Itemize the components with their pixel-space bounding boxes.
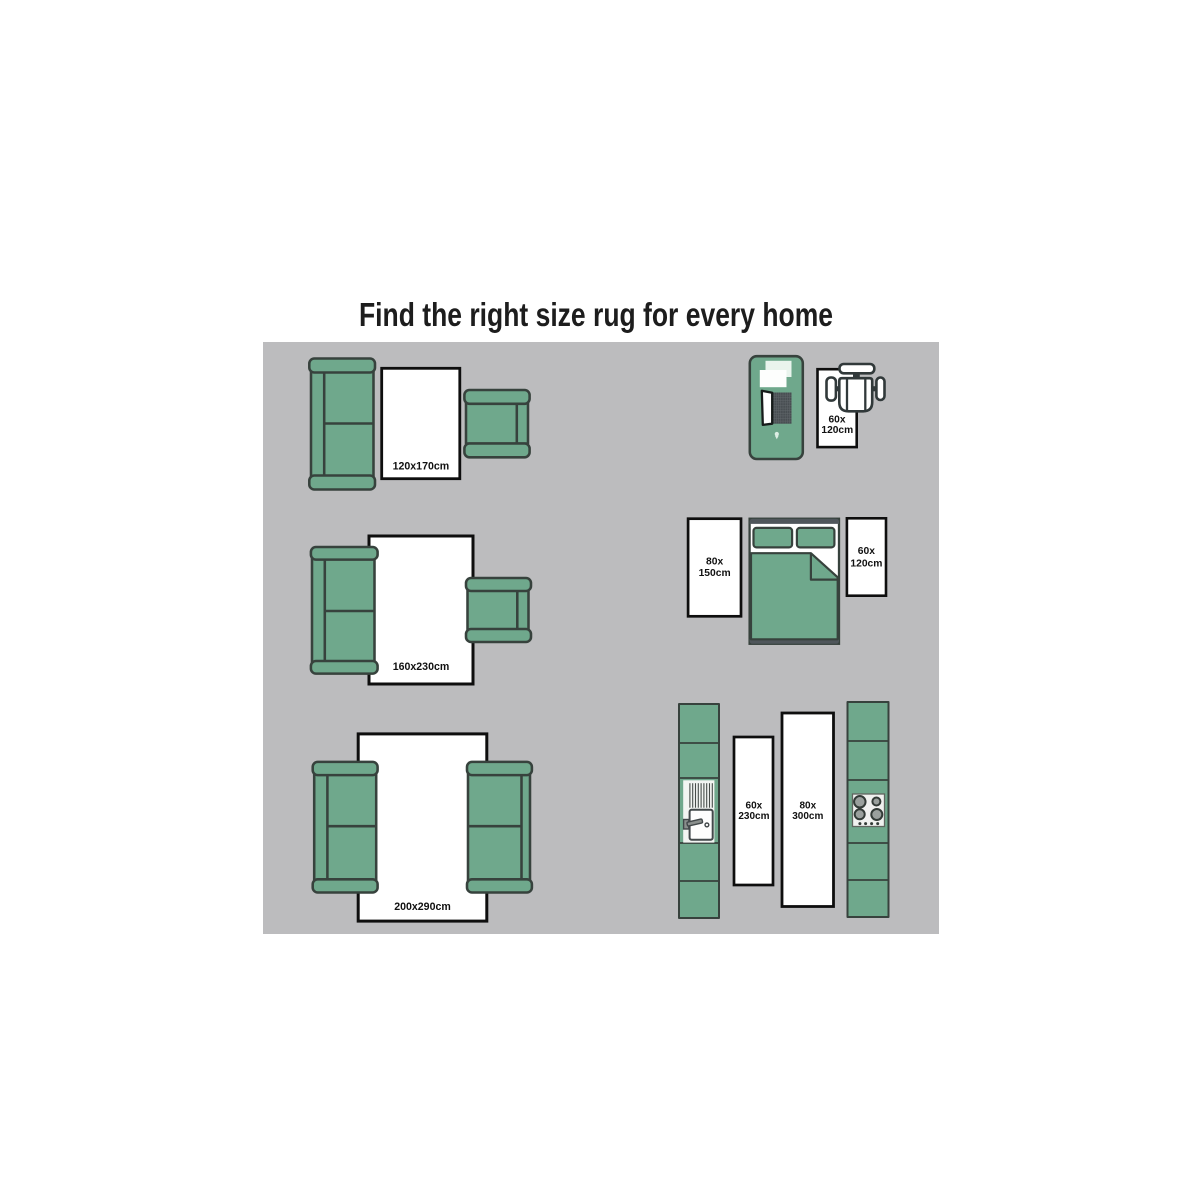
svg-text:60x: 60x — [746, 800, 763, 811]
svg-text:160x230cm: 160x230cm — [393, 661, 450, 673]
svg-text:80x: 80x — [706, 556, 723, 567]
svg-text:Find the right size rug for ev: Find the right size rug for every home — [359, 296, 833, 333]
svg-text:60x: 60x — [829, 415, 846, 426]
svg-text:120cm: 120cm — [850, 558, 882, 569]
svg-text:120cm: 120cm — [821, 425, 853, 436]
svg-text:120x170cm: 120x170cm — [393, 460, 450, 472]
svg-text:300cm: 300cm — [792, 811, 823, 822]
svg-text:80x: 80x — [799, 800, 816, 811]
svg-text:60x: 60x — [858, 546, 875, 557]
svg-text:200x290cm: 200x290cm — [394, 901, 451, 913]
svg-text:150cm: 150cm — [699, 568, 731, 579]
svg-text:230cm: 230cm — [738, 811, 769, 822]
